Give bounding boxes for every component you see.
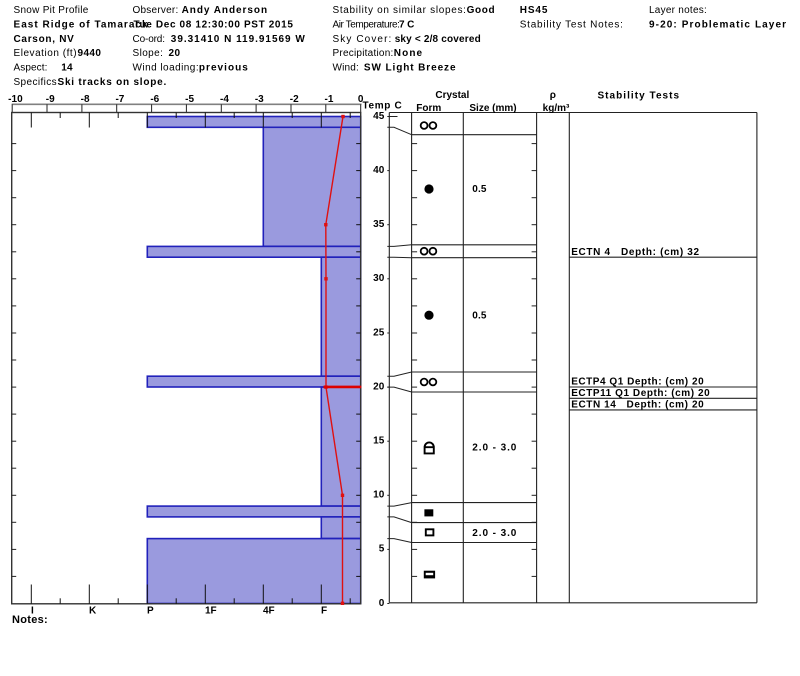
svg-text:HS45: HS45: [520, 5, 549, 16]
svg-text:Wind:: Wind:: [333, 63, 360, 74]
svg-text:5: 5: [379, 544, 385, 555]
svg-text:1F: 1F: [205, 606, 217, 617]
svg-text:Tue Dec 08 12:30:00 PST 2015: Tue Dec 08 12:30:00 PST 2015: [134, 19, 294, 30]
svg-text:35: 35: [373, 219, 385, 230]
svg-text:P: P: [147, 606, 154, 617]
svg-text:Andy Anderson: Andy Anderson: [182, 5, 268, 16]
svg-text:ρ: ρ: [550, 90, 556, 101]
svg-text:Notes:: Notes:: [12, 614, 48, 626]
svg-text:Crystal: Crystal: [435, 90, 469, 101]
svg-text:Layer notes:: Layer notes:: [649, 5, 707, 16]
svg-text:Precipitation:: Precipitation:: [333, 48, 394, 59]
svg-text:20: 20: [169, 48, 181, 59]
svg-text:Good: Good: [467, 5, 496, 16]
svg-text:sky < 2/8 covered: sky < 2/8 covered: [395, 34, 481, 45]
svg-text:kg/m³: kg/m³: [543, 103, 570, 114]
svg-text:K: K: [89, 606, 97, 617]
svg-text:ECTN 4 Depth: (cm) 32: ECTN 4 Depth: (cm) 32: [571, 247, 700, 258]
svg-text:15: 15: [373, 436, 385, 447]
svg-text:9440: 9440: [78, 48, 102, 59]
svg-text:Slope:: Slope:: [133, 48, 164, 59]
svg-text:East Ridge of Tamarack: East Ridge of Tamarack: [14, 19, 149, 30]
svg-text:F: F: [321, 606, 327, 617]
svg-text:None: None: [394, 48, 423, 59]
svg-text:Size (mm): Size (mm): [469, 103, 516, 114]
svg-text:previous: previous: [199, 63, 249, 74]
svg-text:-2: -2: [290, 94, 299, 105]
svg-text:40: 40: [373, 165, 385, 176]
svg-text:Aspect:: Aspect:: [14, 63, 48, 74]
svg-text:Ski tracks on slope.: Ski tracks on slope.: [58, 77, 168, 88]
svg-text:10: 10: [373, 490, 385, 501]
svg-text:0: 0: [379, 598, 385, 609]
svg-text:-7: -7: [115, 94, 124, 105]
svg-text:-5: -5: [185, 94, 194, 105]
svg-text:-4: -4: [220, 94, 229, 105]
svg-text:9-20: Problematic Layer: 9-20: Problematic Layer: [649, 19, 787, 30]
svg-text:45: 45: [373, 111, 385, 122]
svg-text:20: 20: [373, 381, 385, 392]
svg-text:4F: 4F: [263, 606, 275, 617]
svg-text:ECTP4 Q1 Depth: (cm) 20: ECTP4 Q1 Depth: (cm) 20: [571, 377, 704, 388]
svg-text:Carson, NV: Carson, NV: [14, 34, 75, 45]
svg-text:39.31410 N 119.91569 W: 39.31410 N 119.91569 W: [171, 34, 306, 45]
svg-text:ECTP11 Q1 Depth: (cm) 20: ECTP11 Q1 Depth: (cm) 20: [571, 388, 710, 399]
svg-text:-8: -8: [81, 94, 90, 105]
svg-text:2.0 - 3.0: 2.0 - 3.0: [472, 443, 517, 454]
svg-text:-10: -10: [8, 94, 23, 105]
svg-text:7 C: 7 C: [399, 19, 414, 30]
svg-text:Stability Test Notes:: Stability Test Notes:: [520, 19, 624, 30]
svg-text:SW Light Breeze: SW Light Breeze: [364, 63, 457, 74]
svg-text:Wind loading:: Wind loading:: [133, 63, 200, 74]
svg-text:-1: -1: [325, 94, 334, 105]
svg-text:Stability Tests: Stability Tests: [597, 91, 680, 102]
svg-text:Sky Cover:: Sky Cover:: [333, 34, 393, 45]
svg-text:30: 30: [373, 273, 385, 284]
svg-text:2.0 - 3.0: 2.0 - 3.0: [472, 528, 517, 539]
svg-text:Specifics: Specifics: [14, 77, 58, 88]
svg-text:Air Temperature:: Air Temperature:: [333, 19, 400, 30]
svg-text:0.5: 0.5: [472, 310, 487, 321]
svg-text:0.5: 0.5: [472, 184, 487, 195]
svg-text:Snow Pit Profile: Snow Pit Profile: [14, 5, 89, 16]
svg-text:Co-ord:: Co-ord:: [133, 34, 165, 45]
svg-text:Form: Form: [416, 103, 441, 114]
svg-text:-3: -3: [255, 94, 264, 105]
svg-text:ECTN 14 Depth: (cm) 20: ECTN 14 Depth: (cm) 20: [571, 400, 704, 411]
svg-text:Observer:: Observer:: [133, 5, 179, 16]
svg-text:Elevation (ft): Elevation (ft): [14, 48, 78, 59]
svg-text:Stability on similar slopes:: Stability on similar slopes:: [333, 5, 467, 16]
svg-text:14: 14: [61, 63, 73, 74]
svg-text:-6: -6: [150, 94, 159, 105]
svg-text:-9: -9: [46, 94, 55, 105]
svg-text:25: 25: [373, 327, 385, 338]
